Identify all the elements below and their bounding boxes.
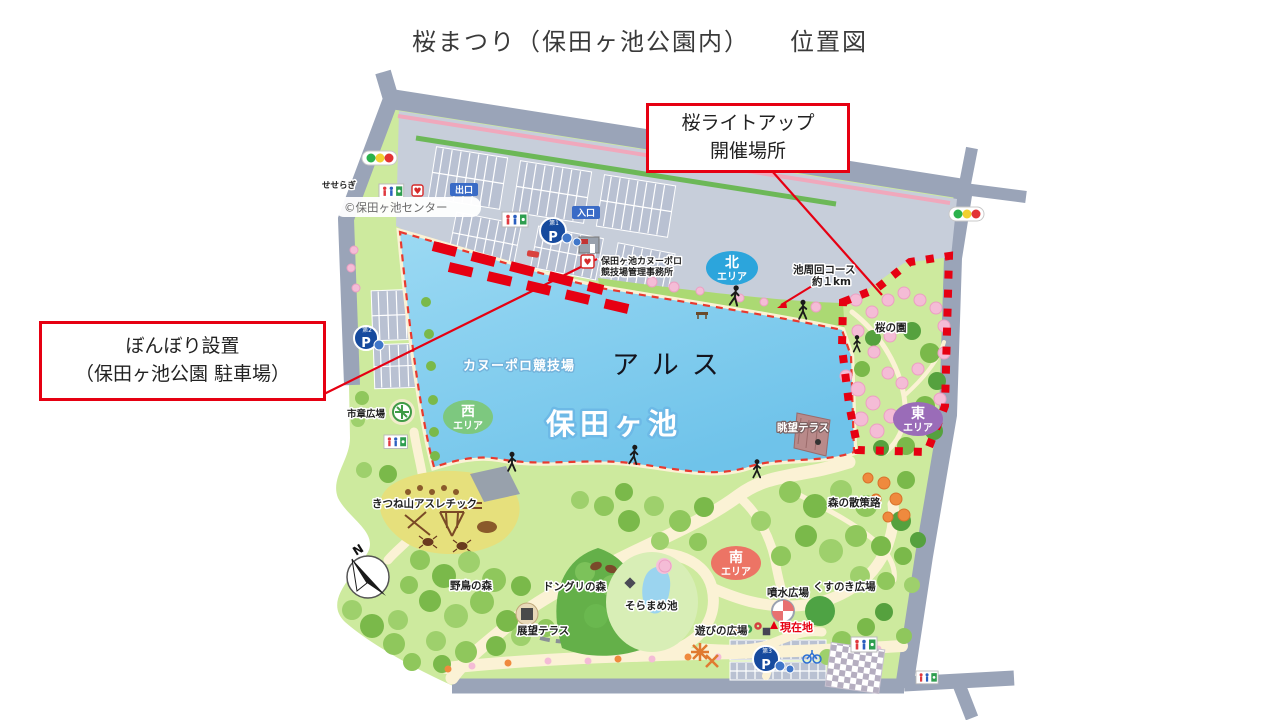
entrance-sign: 入口 [572, 206, 600, 219]
label-kusunoki-plaza: くすのき広場 [813, 580, 876, 593]
svg-text:©保田ヶ池センター: ©保田ヶ池センター [344, 201, 448, 215]
svg-text:P: P [548, 230, 558, 245]
area-badge-north: 北 エリア [706, 251, 758, 285]
label-play-plaza: 遊びの広場 [695, 624, 748, 637]
svg-text:西: 西 [461, 404, 475, 420]
label-sakura-garden: 桜の園 [875, 321, 907, 334]
label-acorn-forest: ドングリの森 [543, 580, 606, 593]
traffic-light-icon [949, 207, 984, 221]
callout-lightup: 桜ライトアップ 開催場所 [646, 103, 850, 173]
label-city-emblem-plaza: 市章広場 [347, 408, 386, 420]
svg-text:エリア: エリア [903, 422, 933, 434]
callout-bonbori-line2: （保田ヶ池公園 駐車場） [75, 361, 290, 389]
svg-text:南: 南 [729, 549, 743, 566]
label-fountain-plaza: 噴水広場 [767, 586, 809, 599]
svg-text:エリア: エリア [453, 420, 483, 432]
traffic-light-icon [362, 151, 397, 165]
office-building [579, 237, 599, 253]
svg-text:出口: 出口 [455, 184, 473, 196]
aed-icon: ♥ [412, 185, 423, 197]
page-title: 桜まつり（保田ヶ池公園内） 位置図 [0, 22, 1280, 57]
svg-text:♥: ♥ [583, 258, 591, 268]
area-badge-east: 東 エリア [893, 402, 943, 436]
label-loop-course-2: 約１km [812, 275, 851, 288]
credit-box: ©保田ヶ池センター [335, 197, 481, 217]
callout-bonbori: ぼんぼり設置 （保田ヶ池公園 駐車場） [39, 321, 326, 401]
label-forest-walk: 森の散策路 [827, 496, 881, 509]
label-observation-terrace: 展望テラス [517, 624, 569, 637]
label-kitsuneyama: きつね山アスレチック [372, 497, 477, 510]
svg-text:第1: 第1 [549, 219, 559, 227]
aed-icon: ♥ [581, 255, 594, 268]
label-office-1: 保田ヶ池カヌーポロ [600, 255, 682, 267]
svg-text:P: P [361, 336, 371, 351]
label-lake-name: 保田ヶ池 [545, 407, 682, 441]
label-office-2: 競技場管理事務所 [601, 266, 673, 278]
callout-bonbori-line1: ぼんぼり設置 [125, 333, 239, 361]
label-wild-bird-forest: 野鳥の森 [450, 579, 492, 592]
area-badge-west: 西 エリア [443, 400, 493, 434]
svg-text:エリア: エリア [721, 566, 751, 578]
svg-text:♥: ♥ [413, 187, 421, 197]
callout-lightup-line1: 桜ライトアップ [681, 110, 814, 138]
svg-text:P: P [761, 658, 771, 673]
svg-text:第2: 第2 [362, 326, 372, 334]
label-canoe-polo-field: カヌーポロ競技場 [463, 358, 575, 374]
label-current-location: 現在地 [780, 620, 813, 634]
label-soramame-pond: そらまめ池 [625, 599, 678, 612]
svg-text:北: 北 [725, 255, 739, 271]
fountain-icon [772, 600, 794, 622]
exit-sign: 出口 [450, 183, 478, 196]
label-loop-course-1: 池周回コース [793, 263, 855, 276]
observation-terrace-deck [516, 603, 538, 625]
area-badge-south: 南 エリア [711, 546, 761, 580]
svg-text:エリア: エリア [717, 271, 747, 283]
label-view-terrace: 眺望テラス [777, 421, 829, 434]
view-terrace-deck [794, 413, 830, 456]
city-emblem-plaza-icon [389, 399, 415, 425]
label-seseragi: せせらぎ [322, 180, 357, 191]
svg-text:東: 東 [911, 405, 925, 422]
label-facility-name: アルス [612, 350, 732, 381]
callout-lightup-line2: 開催場所 [710, 138, 786, 166]
svg-text:入口: 入口 [576, 208, 595, 219]
svg-text:第3: 第3 [762, 647, 772, 655]
